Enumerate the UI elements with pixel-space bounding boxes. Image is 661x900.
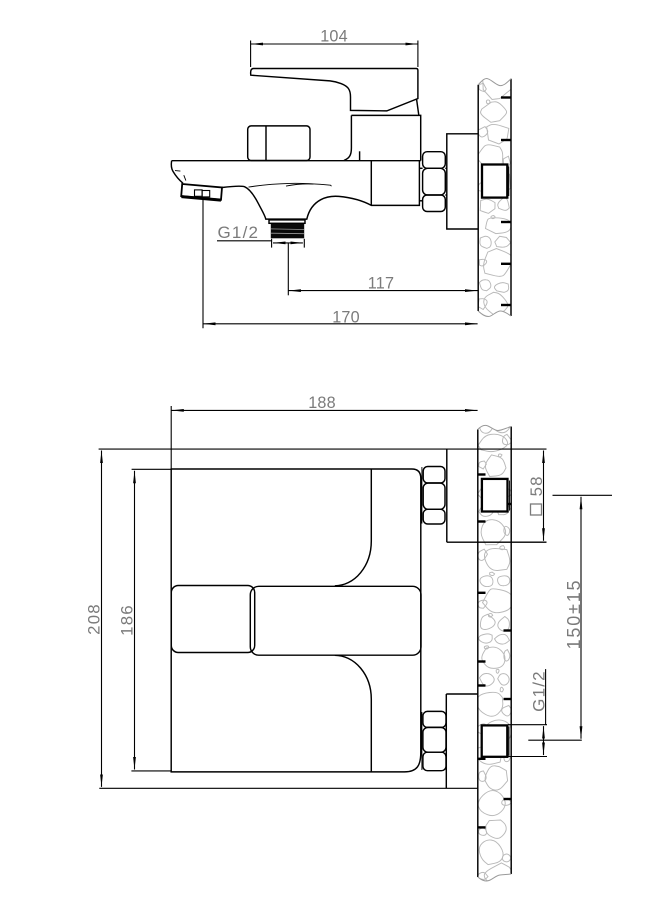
svg-text:117: 117 [368, 275, 394, 293]
svg-text:G1/2: G1/2 [218, 223, 260, 242]
svg-text:186: 186 [118, 604, 137, 636]
svg-text:188: 188 [308, 394, 336, 412]
svg-text:208: 208 [85, 603, 104, 635]
svg-text:150±15: 150±15 [564, 579, 584, 650]
svg-text:104: 104 [320, 28, 348, 46]
svg-text:170: 170 [332, 308, 360, 326]
svg-text:58: 58 [527, 475, 546, 496]
